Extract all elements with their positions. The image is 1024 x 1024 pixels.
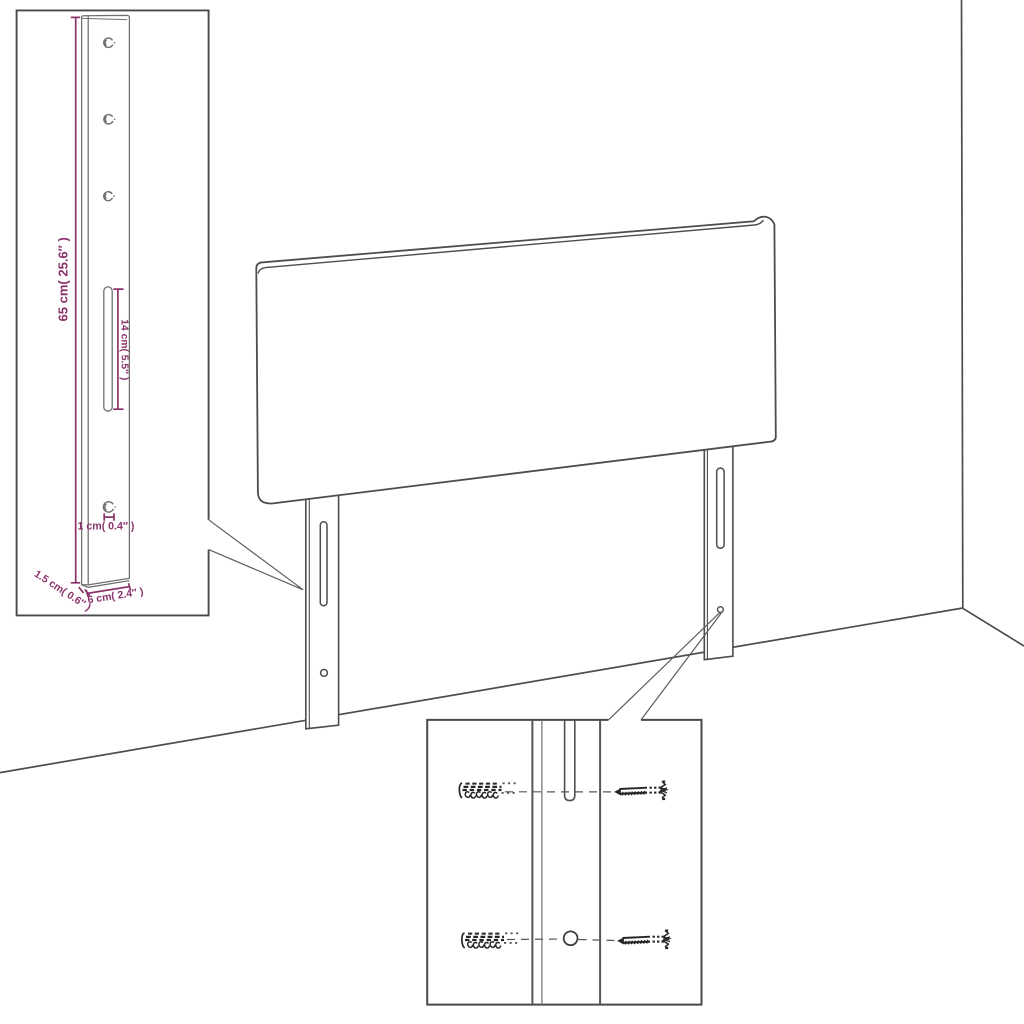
svg-text:1 cm( 0.4″ ): 1 cm( 0.4″ ) [78, 520, 135, 532]
svg-text:65 cm( 25.6″ ): 65 cm( 25.6″ ) [55, 237, 70, 321]
svg-text:14 cm( 5.5″ ): 14 cm( 5.5″ ) [118, 319, 129, 380]
